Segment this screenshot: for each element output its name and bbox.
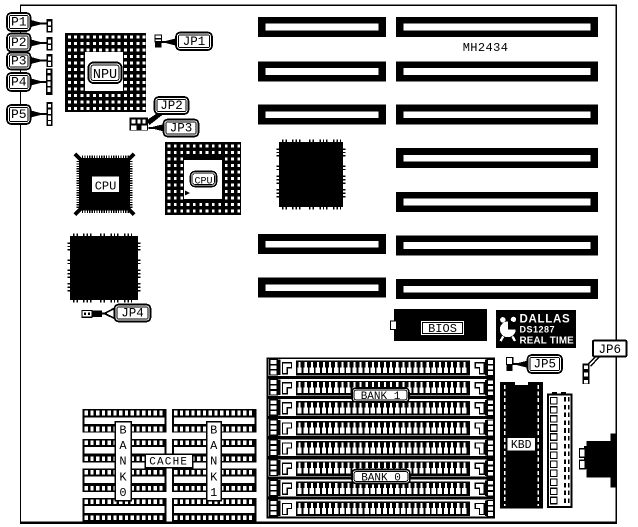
svg-text:P1: P1 (11, 15, 27, 30)
svg-text:K: K (210, 470, 218, 484)
svg-text:B: B (119, 424, 126, 438)
svg-text:B: B (210, 424, 217, 438)
svg-text:K: K (119, 470, 127, 484)
svg-text:CPU: CPU (95, 179, 117, 193)
svg-text:N: N (210, 455, 217, 469)
svg-text:P4: P4 (11, 75, 27, 90)
svg-text:A: A (119, 439, 127, 453)
svg-text:JP2: JP2 (160, 99, 183, 113)
svg-text:CACHE: CACHE (149, 456, 188, 468)
svg-text:MH2434: MH2434 (463, 41, 509, 55)
svg-text:JP5: JP5 (533, 358, 556, 372)
svg-text:JP6: JP6 (598, 343, 621, 357)
svg-text:CPU: CPU (194, 176, 212, 187)
svg-text:BIOS: BIOS (428, 322, 457, 336)
svg-text:0: 0 (119, 486, 126, 500)
svg-text:P3: P3 (11, 54, 27, 69)
svg-text:P2: P2 (11, 35, 27, 50)
svg-text:KBD: KBD (511, 439, 532, 452)
svg-text:DS1287: DS1287 (520, 324, 556, 334)
svg-text:1: 1 (210, 486, 217, 500)
svg-text:N: N (119, 455, 126, 469)
svg-text:P5: P5 (11, 107, 27, 122)
svg-text:BANK 1: BANK 1 (361, 391, 401, 403)
svg-text:BANK 0: BANK 0 (361, 472, 401, 484)
svg-text:NPU: NPU (93, 68, 117, 83)
svg-text:JP4: JP4 (121, 307, 144, 321)
svg-text:A: A (210, 439, 218, 453)
svg-text:JP3: JP3 (170, 122, 193, 136)
svg-text:JP1: JP1 (183, 35, 206, 49)
svg-text:REAL TIME: REAL TIME (520, 335, 575, 346)
